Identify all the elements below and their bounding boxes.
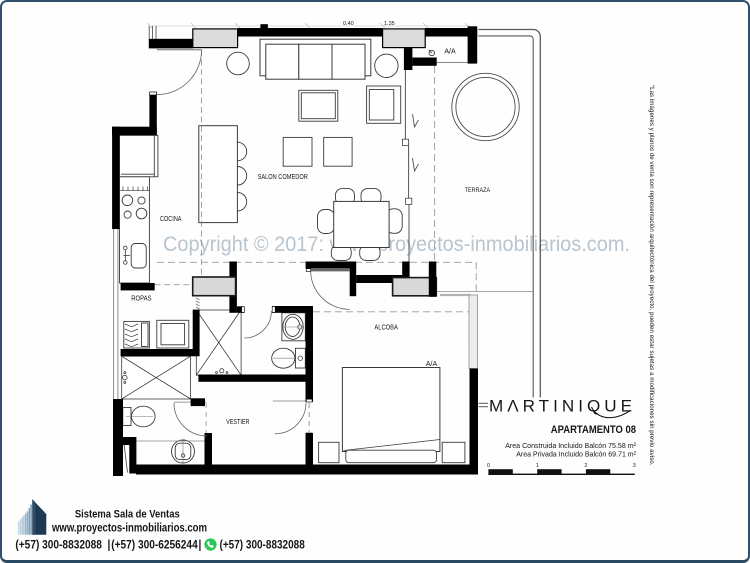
svg-text:VESTIER: VESTIER <box>226 419 249 426</box>
svg-text:ROPAS: ROPAS <box>131 296 152 303</box>
svg-text:Area Privada Incluido Balcón 6: Area Privada Incluido Balcón 69.71 m² <box>516 450 636 459</box>
svg-text:MΛRTINIQUE: MΛRTINIQUE <box>489 397 636 416</box>
svg-text:APARTAMENTO 08: APARTAMENTO 08 <box>551 424 636 436</box>
svg-text:A/A: A/A <box>426 361 438 368</box>
svg-text:“Las imágenes y planos de vent: “Las imágenes y planos de venta son repr… <box>648 85 654 466</box>
svg-text:SALON COMEDOR: SALON COMEDOR <box>258 174 308 181</box>
svg-text:(+57) 300-8832088: (+57) 300-8832088 <box>220 540 306 552</box>
svg-text:Copyright © 2017: www.proyecto: Copyright © 2017: www.proyectos-inmobili… <box>163 232 630 256</box>
svg-text:Sistema Sala de Ventas: Sistema Sala de Ventas <box>75 509 180 521</box>
svg-text:ALCOBA: ALCOBA <box>374 325 398 332</box>
svg-text:www.proyectos-inmobiliarios.co: www.proyectos-inmobiliarios.com <box>51 523 207 535</box>
svg-text:2: 2 <box>584 463 587 469</box>
svg-text:0: 0 <box>487 463 490 469</box>
svg-text:3: 3 <box>633 463 636 469</box>
svg-text:TERRAZA: TERRAZA <box>465 187 491 194</box>
svg-text:A/A: A/A <box>444 49 456 56</box>
svg-text:1: 1 <box>536 463 539 469</box>
svg-text:(+57) 300-8832088 | (+57) 300: (+57) 300-8832088 | (+57) 300-6256244 | <box>15 540 201 552</box>
svg-text:1.35: 1.35 <box>384 21 395 27</box>
svg-text:COCINA: COCINA <box>160 216 182 223</box>
svg-text:0.40: 0.40 <box>343 21 354 27</box>
